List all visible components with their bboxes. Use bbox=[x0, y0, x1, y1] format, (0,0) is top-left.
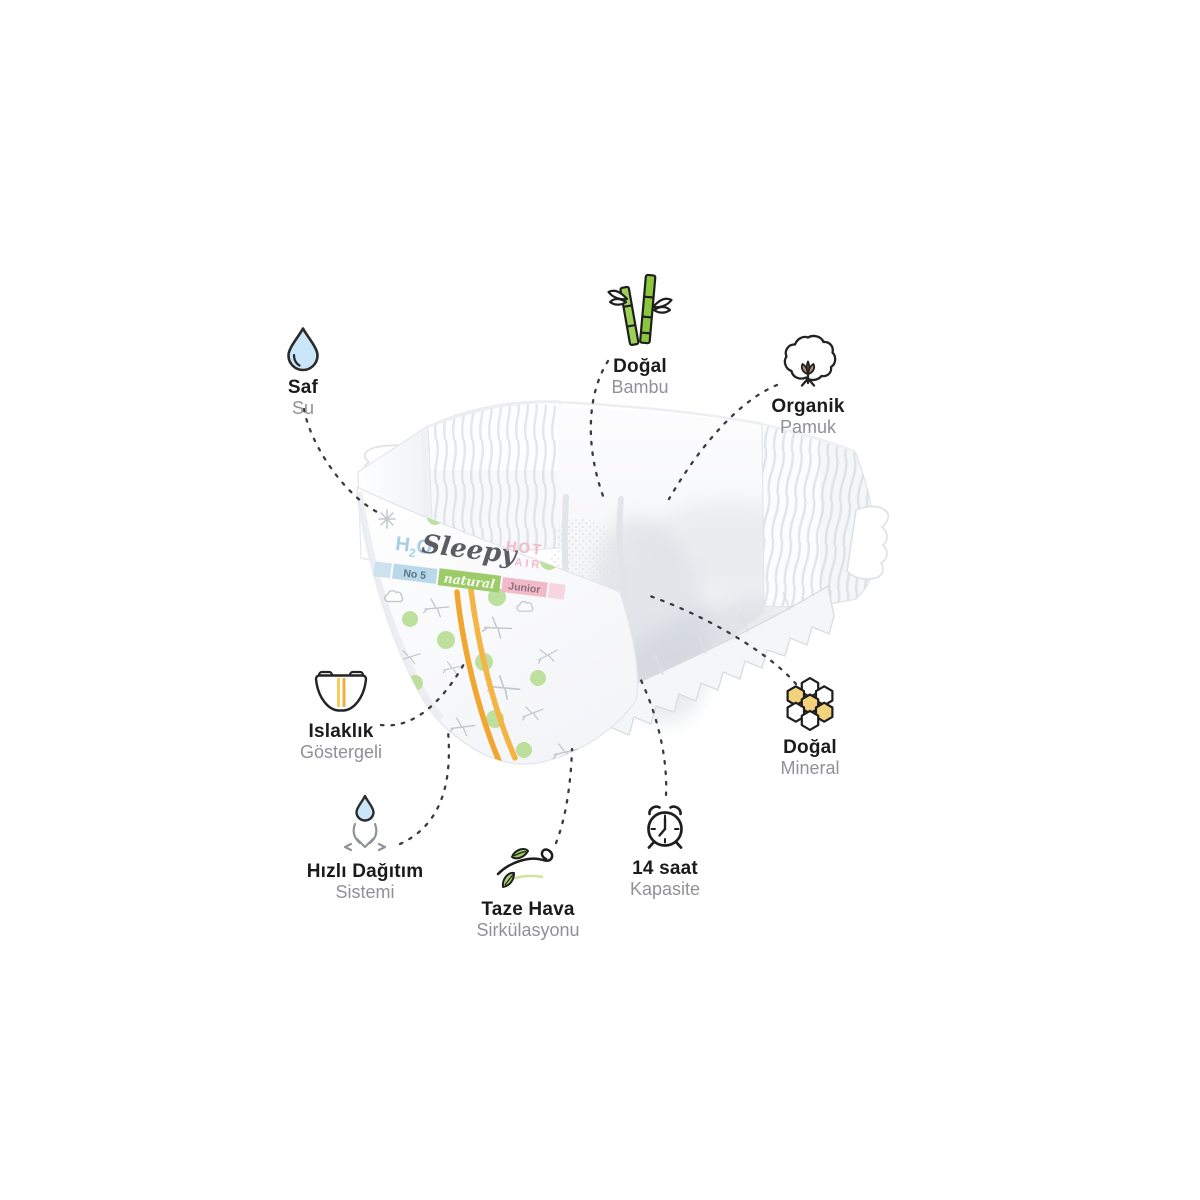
wetness-indicator-diaper-icon bbox=[311, 670, 371, 716]
feature-subtitle: Kapasite bbox=[630, 879, 700, 900]
feature-hizli-dagitim: Hızlı Dağıtım Sistemi bbox=[280, 794, 450, 903]
feature-title: Hızlı Dağıtım bbox=[307, 861, 424, 882]
feature-subtitle: Mineral bbox=[780, 758, 839, 779]
feature-dogal-mineral: Doğal Mineral bbox=[725, 676, 895, 779]
feature-subtitle: Göstergeli bbox=[300, 742, 382, 763]
fresh-air-leaves-icon bbox=[495, 840, 561, 894]
feature-subtitle: Sistemi bbox=[335, 882, 394, 903]
feature-subtitle: Bambu bbox=[611, 377, 668, 398]
cotton-icon bbox=[778, 333, 838, 391]
feature-islaklik-gostergeli: Islaklık Göstergeli bbox=[256, 670, 426, 763]
drop-distribution-icon bbox=[342, 794, 388, 856]
alarm-clock-icon bbox=[640, 803, 690, 853]
feature-title: Organik bbox=[771, 396, 844, 417]
feature-subtitle: Sirkülasyonu bbox=[476, 920, 579, 941]
feature-14-saat: 14 saat Kapasite bbox=[580, 803, 750, 900]
feature-saf-su: Saf Su bbox=[218, 326, 388, 419]
bamboo-icon bbox=[607, 271, 673, 351]
feature-title: Islaklık bbox=[309, 721, 374, 742]
water-drop-icon bbox=[286, 326, 320, 372]
honeycomb-icon bbox=[784, 676, 836, 732]
feature-title: Doğal bbox=[613, 356, 667, 377]
diaper-illustration: H2O Sleepy HOT AIR No 5 natural Junior bbox=[0, 0, 1200, 1200]
feature-organik-pamuk: Organik Pamuk bbox=[723, 333, 893, 438]
feature-subtitle: Su bbox=[292, 398, 314, 419]
feature-title: Doğal bbox=[783, 737, 837, 758]
feature-subtitle: Pamuk bbox=[780, 417, 836, 438]
connector-taze-hava bbox=[556, 749, 572, 843]
product-infographic: H2O Sleepy HOT AIR No 5 natural Junior bbox=[0, 0, 1200, 1200]
feature-title: Saf bbox=[288, 377, 318, 398]
feature-title: Taze Hava bbox=[481, 899, 574, 920]
feature-dogal-bambu: Doğal Bambu bbox=[555, 271, 725, 398]
feature-title: 14 saat bbox=[632, 858, 698, 879]
